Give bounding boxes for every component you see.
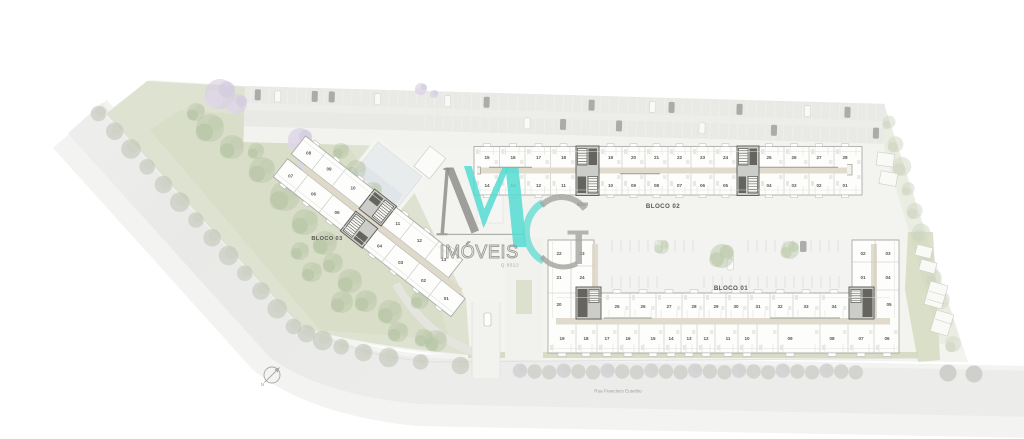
svg-text:Q 9522: Q 9522 [501,263,519,268]
svg-text:IMÓVEIS: IMÓVEIS [440,241,519,262]
